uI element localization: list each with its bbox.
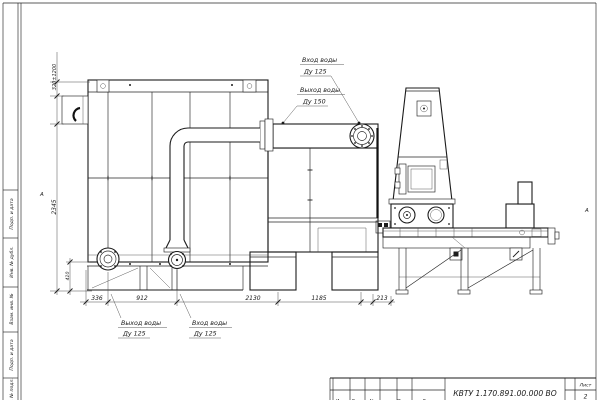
header-unit — [250, 119, 390, 290]
stack-box — [506, 182, 534, 228]
bottom-inlet-flange — [169, 252, 186, 269]
table-end-cap — [548, 228, 555, 244]
label-text: Вход воды — [192, 320, 227, 327]
outlet-flange-du150 — [260, 119, 273, 151]
label-bottom-inlet: Вход воды Ду 125 — [180, 294, 232, 338]
label-text: Ду 125 — [122, 331, 146, 338]
dim-213: 213 — [376, 295, 388, 302]
title-block: КВТУ 1.170.891.00.000 ВО Лист 2 Изм. Лис… — [330, 378, 596, 400]
assembly-drawing-canvas: Подп. и дата Инв. № дубл. Взам. инв. № П… — [0, 0, 600, 400]
label-text: Вход воды — [302, 57, 337, 64]
pedestal — [332, 252, 378, 290]
sheet-label: Лист — [579, 383, 592, 389]
label-text: Выход воды — [300, 87, 340, 94]
hood-inspection-plate — [417, 101, 431, 116]
fan-box — [389, 199, 455, 228]
furnace-support-frame — [383, 228, 559, 294]
document-number: КВТУ 1.170.891.00.000 ВО — [453, 389, 557, 398]
label-text: Ду 125 — [193, 331, 217, 338]
hanger-bracket — [450, 248, 462, 260]
stamp-label: Подп. и дата — [9, 198, 15, 229]
drawing-sheet: Подп. и дата Инв. № дубл. Взам. инв. № П… — [0, 0, 600, 400]
label-top-outlet: Выход воды Ду 150 — [282, 87, 345, 124]
hanger-bracket — [510, 248, 522, 260]
dim-bracket-height: 320±1200 — [52, 64, 58, 90]
stamp-label: Взам. инв. № — [9, 293, 15, 324]
stamp-label: Инв. № дубл. — [9, 246, 15, 277]
furnace-unit — [389, 88, 534, 228]
connecting-pipe — [97, 128, 260, 270]
dim-base-height: 410 — [65, 272, 71, 281]
inlet-flange-du125 — [350, 124, 374, 148]
view-marker-a-right: А — [584, 208, 589, 214]
lifting-lug — [97, 80, 109, 92]
dim-overall-height: 2345 — [51, 199, 58, 214]
dim-1185: 1185 — [311, 295, 326, 302]
pedestal — [250, 252, 296, 290]
dim-912: 912 — [136, 295, 148, 302]
lifting-lug — [243, 80, 256, 92]
economizer-unit — [62, 80, 268, 290]
label-text: Ду 125 — [303, 69, 327, 76]
dim-2130: 2130 — [245, 295, 260, 302]
side-bracket — [62, 96, 88, 124]
stamp-label: Подп. и дата — [9, 339, 15, 370]
dim-336: 336 — [91, 295, 103, 302]
bottom-outlet-flange — [97, 248, 119, 270]
label-text: Выход воды — [121, 320, 161, 327]
sheet-frame: Подп. и дата Инв. № дубл. Взам. инв. № П… — [3, 3, 596, 400]
sheet-number: 2 — [584, 394, 588, 400]
stamp-label: Инв. № подл. — [9, 378, 15, 400]
label-text: Ду 150 — [302, 99, 326, 106]
view-marker-a-left: А — [39, 192, 44, 198]
